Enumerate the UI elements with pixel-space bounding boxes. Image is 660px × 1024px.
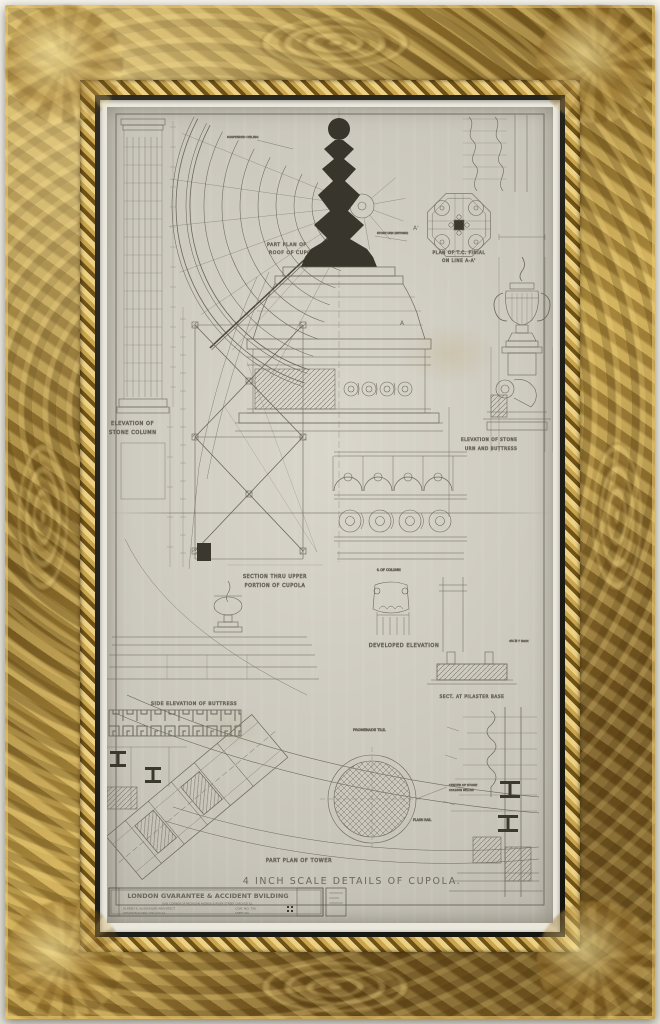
label-flash-rail: FLASH RAIL [413,818,432,822]
title-block-sheet: SHEET NO. [235,911,250,915]
paper-fold-crease [107,512,553,514]
label-ceiling-note: SUSPENDED CEILING [227,135,259,139]
label-section-2: PORTION OF CUPOLA [245,583,306,589]
drawing-sheet: ELEVATION OF STONE COLUMN [107,107,553,923]
label-column-below-2: COLUMN BELOW [449,788,474,792]
urn-and-buttress-elevation: STONE URN (BEYOND) [375,231,553,452]
buttress-side-elevation: SIDE ELEVATION OF BUTTRESS [107,539,319,736]
label-part-plan-tower: PART PLAN OF TOWER [266,858,332,864]
label-centerline-column: ℄ OF COLUMN [377,568,401,572]
frame-edge-ornament [591,442,643,592]
label-pilaster-base: SECT. AT PILASTER BASE [440,694,505,699]
label-urn-2: URN AND BUTTRESS [465,446,517,451]
title-block-commission: COM. NO. 750 [235,907,256,911]
steel-beam-details [107,747,187,809]
drawing-main-title: 4 INCH SCALE DETAILS OF CUPOLA. [243,876,462,887]
label-urn-1: ELEVATION OF STONE [461,437,517,442]
title-block-building: LONDON GVARANTEE & ACCIDENT BVILDING [127,892,288,900]
developed-elevation: ℄ OF COLUMN DEVELOPED ELEVATION [333,452,467,652]
finial-plan-octagon: PLAN OF T.C. FINIAL ON LINE A-A' [428,194,545,263]
label-finial-plan-2: ON LINE A-A' [442,258,476,263]
frame-bead-band: ELEVATION OF STONE COLUMN [80,80,580,952]
title-block-address: N.W. CORNER OF MICHIGAN AVENUE & RIVER S… [162,902,253,906]
pilaster-base-section: 4½ ℔ T IRON SECT. AT PILASTER BASE [427,639,529,699]
frame-edge-ornament [17,442,69,592]
photo-of-framed-drawing: ELEVATION OF STONE COLUMN [0,0,660,1024]
title-block-architect: ALFRED S. ALSCHULER ARCHITECT [123,907,175,911]
section-marker-a-prime: A' [413,225,419,232]
label-t-iron: 4½ ℔ T IRON [509,639,529,643]
frame-black-liner: ELEVATION OF STONE COLUMN [95,95,565,937]
label-promenade-tile: PROMENADE TILE. [353,728,386,732]
label-column-below-1: CENTER OF STONE [449,783,477,787]
label-stone-column-1: ELEVATION OF [111,421,154,427]
label-developed-elevation: DEVELOPED ELEVATION [369,643,440,649]
frame-edge-ornament [260,17,410,69]
roof-plan-fan: SUSPENDED CEILING PART PLAN OF ROOF OF C… [169,117,405,387]
frame-edge-ornament [260,961,410,1013]
cupola-details-drawing: ELEVATION OF STONE COLUMN [107,107,553,923]
label-stone-column-2: STONE COLUMN [109,430,157,436]
gold-ornate-frame: ELEVATION OF STONE COLUMN [5,5,655,1019]
label-buttress: SIDE ELEVATION OF BUTTRESS [151,701,237,707]
label-roof-plan-1: PART PLAN OF [267,242,307,248]
label-finial-plan-1: PLAN OF T.C. FINIAL [433,250,486,255]
stone-column-elevation: ELEVATION OF STONE COLUMN [109,119,176,499]
white-mat: ELEVATION OF STONE COLUMN [100,100,560,932]
title-block: LONDON GVARANTEE & ACCIDENT BVILDING N.W… [109,888,346,916]
cupola-finial-section: A A' [235,111,443,562]
section-marker-a: A [400,320,405,327]
truss-section: SECTION THRU UPPER PORTION OF CUPOLA [167,272,323,589]
label-urn-beyond: STONE URN (BEYOND) [377,231,408,235]
cornice-profile-detail [463,115,527,192]
title-block-office: STEGER BUILDING CHICAGO ILL. [123,911,167,915]
parapet-wall-section [443,707,543,897]
label-section-1: SECTION THRU UPPER [243,574,307,580]
